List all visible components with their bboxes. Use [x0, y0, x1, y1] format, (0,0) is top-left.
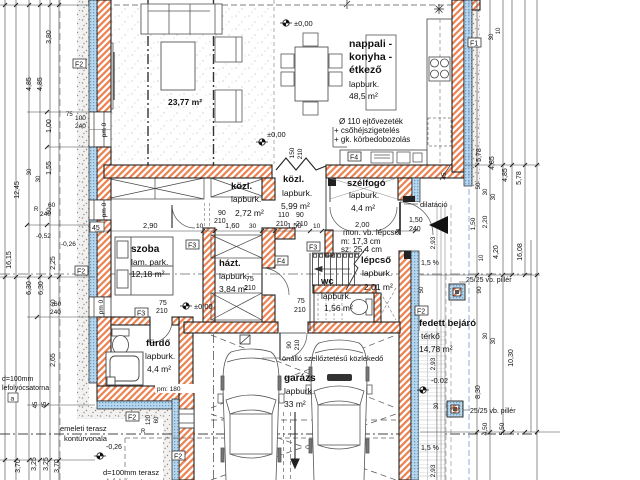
svg-text:30: 30	[249, 223, 257, 230]
svg-text:1,5 %: 1,5 %	[421, 260, 439, 267]
svg-text:48,5 m²: 48,5 m²	[349, 91, 378, 101]
svg-text:F2: F2	[174, 454, 182, 461]
svg-text:-0.02: -0.02	[431, 376, 448, 385]
svg-text:lapburk.: lapburk.	[349, 190, 379, 200]
svg-text:4,85: 4,85	[502, 168, 509, 182]
svg-text:5,99 m²: 5,99 m²	[281, 201, 310, 211]
svg-text:±0,00: ±0,00	[294, 19, 313, 28]
svg-text:+ gk. körbedobozolás: + gk. körbedobozolás	[334, 135, 410, 144]
svg-text:4,85: 4,85	[489, 156, 496, 170]
svg-text:10,30: 10,30	[508, 349, 515, 367]
svg-text:F3: F3	[188, 243, 196, 250]
svg-text:90: 90	[218, 210, 226, 217]
svg-text:lam. park.: lam. park.	[131, 257, 168, 267]
svg-text:fedett bejáró: fedett bejáró	[419, 318, 476, 329]
svg-text:10: 10	[496, 27, 502, 34]
svg-text:lapburk.: lapburk.	[284, 386, 314, 396]
svg-text:-0,26: -0,26	[106, 444, 122, 451]
svg-text:1,56 m²: 1,56 m²	[324, 303, 353, 313]
svg-text:240: 240	[40, 211, 51, 218]
svg-text:F3: F3	[137, 311, 145, 318]
svg-text:dilatáció: dilatáció	[420, 200, 448, 209]
svg-text:90: 90	[286, 341, 293, 349]
svg-text:240: 240	[75, 123, 86, 130]
svg-text:-0,26: -0,26	[61, 241, 76, 248]
svg-text:30: 30	[27, 168, 33, 175]
svg-text:120: 120	[146, 414, 152, 425]
svg-text:d=100mm: d=100mm	[2, 376, 33, 383]
svg-text:a: a	[11, 396, 15, 403]
svg-text:fürdő: fürdő	[146, 338, 170, 349]
svg-text:10: 10	[196, 223, 204, 230]
svg-text:210: 210	[244, 285, 256, 292]
svg-text:2,20: 2,20	[482, 215, 489, 228]
svg-text:önálló szellőztetésű közlekedő: önálló szellőztetésű közlekedő	[282, 354, 383, 363]
svg-text:90: 90	[476, 286, 483, 294]
svg-text:4,50: 4,50	[482, 422, 489, 435]
svg-text:50: 50	[476, 182, 482, 189]
svg-text:közl.: közl.	[283, 174, 304, 185]
svg-text:30: 30	[483, 332, 489, 339]
svg-text:±0,00: ±0,00	[194, 302, 213, 311]
svg-text:2,93: 2,93	[430, 236, 437, 249]
svg-text:lépcső: lépcső	[361, 255, 391, 266]
svg-text:1,60: 1,60	[225, 221, 240, 230]
svg-text:1,5 %: 1,5 %	[421, 445, 439, 452]
svg-text:4,4 m²: 4,4 m²	[147, 364, 171, 374]
svg-text:10: 10	[479, 254, 485, 261]
svg-text:75: 75	[159, 300, 167, 307]
svg-text:240: 240	[409, 226, 421, 233]
svg-text:étkező: étkező	[349, 64, 382, 76]
svg-text:75: 75	[297, 298, 305, 305]
svg-text:60: 60	[154, 416, 160, 423]
svg-text:30: 30	[434, 402, 440, 409]
svg-text:F2: F2	[128, 415, 136, 422]
svg-text:4,85: 4,85	[26, 77, 33, 91]
svg-text:2,93: 2,93	[430, 464, 437, 477]
svg-text:pm 0: pm 0	[101, 122, 108, 137]
svg-text:6,30: 6,30	[38, 281, 45, 295]
svg-text:4,4 m²: 4,4 m²	[351, 203, 375, 213]
svg-text:50: 50	[419, 286, 425, 293]
svg-text:60: 60	[48, 202, 56, 209]
svg-text:garázs: garázs	[284, 373, 316, 384]
svg-text:Ø 110 ejtővezeték: Ø 110 ejtővezeték	[339, 117, 404, 126]
svg-text:2,72 m²: 2,72 m²	[235, 208, 264, 218]
svg-text:nappali -: nappali -	[349, 38, 393, 50]
svg-text:F3: F3	[309, 245, 317, 252]
svg-text:14,78 m²: 14,78 m²	[419, 344, 453, 354]
svg-text:240: 240	[50, 309, 61, 316]
svg-text:210: 210	[156, 308, 168, 315]
svg-text:210: 210	[294, 339, 301, 350]
svg-text:F2: F2	[75, 62, 83, 69]
svg-text:wc: wc	[320, 276, 334, 287]
svg-text:30: 30	[483, 188, 489, 195]
svg-text:szélfogó: szélfogó	[347, 178, 386, 189]
svg-text:d=100mm terasz: d=100mm terasz	[103, 468, 159, 477]
svg-text:16,08: 16,08	[517, 243, 524, 261]
svg-text:F4: F4	[350, 155, 358, 162]
svg-text:3,25: 3,25	[43, 457, 50, 471]
svg-text:lapburk.: lapburk.	[362, 268, 392, 278]
svg-text:pm: 180: pm: 180	[157, 386, 181, 393]
svg-text:5,78: 5,78	[516, 171, 523, 185]
svg-text:3,80: 3,80	[46, 30, 53, 44]
svg-text:lapburk.: lapburk.	[219, 271, 249, 281]
svg-text:12,45: 12,45	[14, 181, 21, 199]
svg-text:60: 60	[54, 301, 62, 308]
svg-text:2,65: 2,65	[50, 353, 57, 367]
svg-text:+ csőhéjszigetelés: + csőhéjszigetelés	[334, 126, 400, 135]
svg-text:3,70: 3,70	[15, 459, 22, 473]
svg-text:210: 210	[297, 148, 304, 159]
svg-text:23,77 m²: 23,77 m²	[168, 97, 202, 107]
svg-text:75: 75	[66, 112, 73, 118]
svg-text:4,20: 4,20	[493, 245, 500, 259]
svg-text:150: 150	[289, 147, 296, 158]
svg-text:1,50: 1,50	[287, 221, 302, 230]
svg-text:F2: F2	[77, 269, 85, 276]
svg-text:1,50: 1,50	[409, 217, 423, 224]
svg-text:5,50: 5,50	[499, 422, 506, 435]
svg-text:lapburk.: lapburk.	[349, 79, 379, 89]
svg-text:30: 30	[36, 175, 42, 182]
svg-text:házt.: házt.	[219, 258, 241, 269]
svg-text:5,78: 5,78	[476, 148, 483, 162]
svg-text:16,15: 16,15	[6, 251, 13, 269]
svg-text:2,25: 2,25	[50, 256, 57, 270]
svg-text:110: 110	[278, 212, 289, 219]
svg-text:30: 30	[491, 193, 497, 200]
svg-text:lefolyócsatorna: lefolyócsatorna	[2, 385, 49, 392]
svg-text:lapburk.: lapburk.	[321, 291, 351, 301]
svg-text:-0,52: -0,52	[36, 233, 51, 240]
svg-text:pm 0: pm 0	[101, 202, 108, 217]
svg-text:25/25 vb. pillér: 25/25 vb. pillér	[466, 277, 512, 284]
svg-text:R: R	[34, 207, 39, 213]
svg-text:6,30: 6,30	[26, 281, 33, 295]
svg-text:pm 0: pm 0	[98, 299, 105, 314]
svg-text:210: 210	[294, 307, 306, 314]
svg-text:10: 10	[313, 223, 321, 230]
svg-text:33 m²: 33 m²	[284, 399, 306, 409]
svg-text:1,50: 1,50	[470, 217, 477, 230]
svg-text:3,25: 3,25	[31, 457, 38, 471]
svg-text:8,30: 8,30	[475, 385, 482, 399]
svg-text:lapburk.: lapburk.	[231, 194, 261, 204]
svg-text:1,55: 1,55	[46, 161, 53, 175]
svg-text:45: 45	[33, 401, 39, 408]
svg-text:lapburk.: lapburk.	[145, 351, 175, 361]
svg-text:konyha -: konyha -	[349, 51, 393, 63]
svg-text:közl.: közl.	[231, 181, 252, 192]
svg-text:szoba: szoba	[131, 244, 160, 255]
svg-text:30: 30	[489, 33, 495, 40]
svg-text:2,01 m²: 2,01 m²	[364, 282, 393, 292]
svg-text:75: 75	[246, 276, 254, 283]
svg-text:F4: F4	[277, 259, 285, 266]
svg-text:F2: F2	[417, 309, 425, 316]
svg-text:45: 45	[42, 401, 48, 408]
svg-text:30: 30	[491, 337, 497, 344]
svg-text:lapburk.: lapburk.	[282, 188, 312, 198]
svg-text:2,90: 2,90	[143, 221, 158, 230]
svg-text:4,85: 4,85	[37, 77, 44, 91]
svg-text:±0,00: ±0,00	[267, 130, 286, 139]
svg-text:F1: F1	[470, 41, 478, 48]
svg-text:emeleti terasz: emeleti terasz	[60, 424, 107, 433]
svg-text:3,70: 3,70	[54, 459, 61, 473]
svg-text:90: 90	[296, 212, 304, 219]
svg-text:2,93: 2,93	[430, 357, 437, 370]
svg-text:100: 100	[75, 115, 86, 122]
svg-text:1,00: 1,00	[46, 119, 53, 133]
svg-text:mon. vb. lépcső: mon. vb. lépcső	[343, 228, 400, 237]
svg-text:sz: 25,4 cm: sz: 25,4 cm	[341, 245, 382, 254]
svg-text:kontúrvonala: kontúrvonala	[64, 434, 108, 443]
svg-text:térkő: térkő	[421, 331, 440, 341]
svg-text:R: R	[141, 429, 146, 435]
